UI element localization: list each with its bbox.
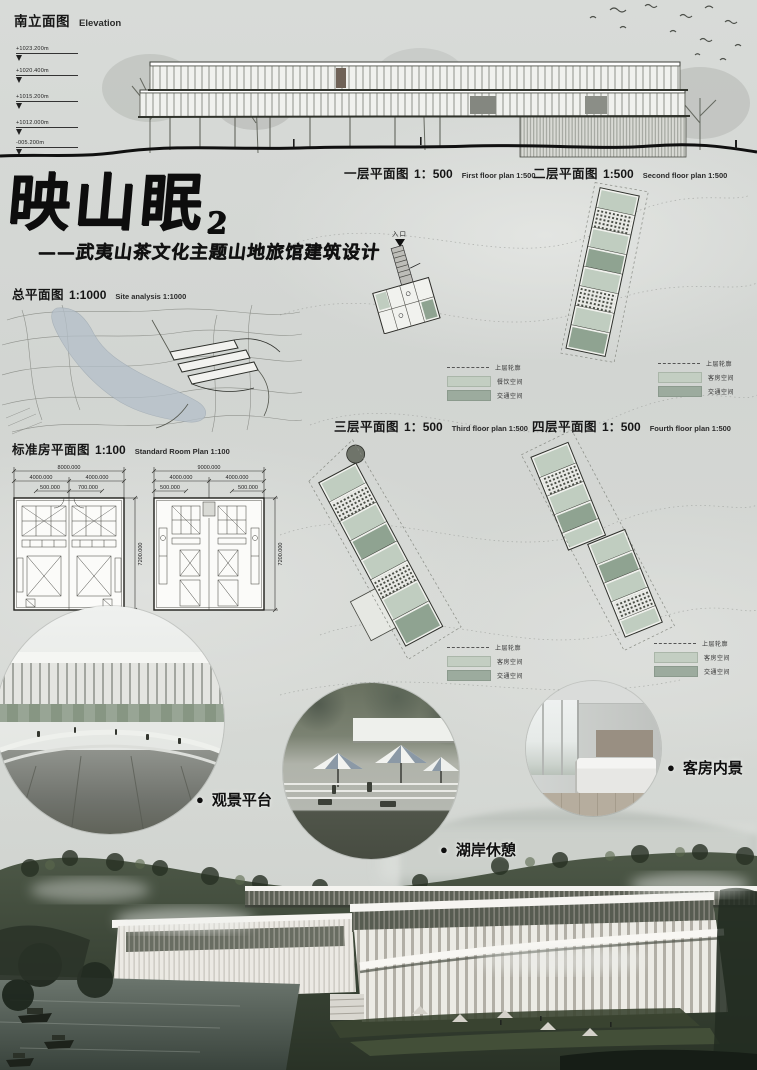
legend-light-label: 客房空间 [708, 373, 734, 382]
dashed-line-swatch [658, 363, 700, 364]
dim-a: 4000.000 [170, 475, 193, 481]
bullet-icon: ● [667, 760, 675, 775]
lakeside-caption: ● 湖岸休憩 [440, 839, 516, 860]
legend-dark-label: 交通空间 [708, 387, 734, 396]
legend-light-label: 客房空间 [704, 653, 730, 662]
platform-curves [0, 606, 224, 834]
person-figure [332, 785, 336, 794]
window-mullion [542, 700, 544, 776]
light-green-swatch [447, 376, 491, 387]
room-floor [526, 793, 661, 816]
dashed-line-swatch [447, 367, 489, 368]
elevation-title-zh: 南立面图 [14, 10, 70, 30]
light-green-swatch [654, 652, 698, 663]
first-floor-label-en: First floor plan 1:500 [462, 171, 536, 180]
standard-room-plan-left: 8000.000 4000.000 4000.000 500.000 700.0… [6, 462, 146, 622]
person-figure [367, 782, 372, 792]
dark-green-swatch [447, 670, 491, 681]
legend-third-floor: 上层轮廓 客房空间 交通空间 [447, 642, 523, 680]
lakeside-umbrellas [283, 683, 459, 859]
dim-b: 4000.000 [226, 475, 249, 481]
light-green-swatch [447, 656, 491, 667]
platform-caption-text: 观景平台 [212, 789, 272, 810]
first-floor-label: 一层平面图 1：500 First floor plan 1:500 [344, 163, 536, 182]
site-plan-drawing [2, 300, 302, 438]
dim-a: 4000.000 [30, 475, 53, 481]
room-caption: ● 客房内景 [667, 757, 743, 778]
platform-caption: ● 观景平台 [196, 789, 272, 810]
legend-dark-label: 交通空间 [704, 667, 730, 676]
dim-height: 7200.000 [138, 543, 144, 566]
first-floor-plan-drawing [350, 214, 460, 334]
render-circle-room [526, 681, 661, 816]
second-floor-scale: 1:500 [603, 167, 634, 181]
elevation-section-title: 南立面图 Elevation [14, 10, 121, 30]
site-building-footprint [170, 339, 280, 392]
dim-total: 9000.000 [198, 465, 221, 471]
main-title: 映山眠2 [5, 172, 235, 234]
legend-dashed-label: 上层轮廓 [706, 359, 732, 368]
table [380, 801, 396, 807]
dim-height: 7200.000 [278, 543, 284, 566]
room-window [526, 700, 579, 776]
legend-second-floor: 上层轮廓 客房空间 交通空间 [658, 358, 734, 396]
first-floor-label-zh: 一层平面图 [344, 163, 409, 182]
dark-green-swatch [447, 390, 491, 401]
standard-room-label-en: Standard Room Plan 1:100 [135, 447, 230, 456]
second-floor-label-en: Second floor plan 1:500 [643, 171, 728, 180]
legend-dark-label: 交通空间 [497, 671, 523, 680]
legend-light-label: 餐饮空间 [497, 377, 523, 386]
elevation-building [138, 62, 690, 157]
person-figure [115, 729, 118, 735]
standard-room-plan-right: 9000.000 4000.000 4000.000 500.000 500.0… [146, 462, 286, 622]
light-green-swatch [658, 372, 702, 383]
third-floor-plan-drawing [300, 432, 465, 687]
person-figure [74, 727, 77, 733]
main-title-number: 2 [205, 209, 232, 239]
legend-first-floor: 上层轮廓 餐饮空间 交通空间 [447, 362, 523, 400]
main-title-text: 映山眠 [5, 166, 209, 239]
birds-flock [550, 0, 757, 72]
room-bed [577, 758, 655, 793]
dim-b: 4000.000 [86, 475, 109, 481]
legend-dashed-label: 上层轮廓 [495, 363, 521, 372]
render-circle-lakeside [283, 683, 459, 859]
lake [0, 975, 300, 1070]
legend-dark-label: 交通空间 [497, 391, 523, 400]
render-circle-platform [0, 606, 224, 834]
person-figure [37, 731, 40, 737]
table [318, 799, 332, 805]
dashed-line-swatch [447, 647, 489, 648]
site-field-hatch [6, 408, 42, 434]
standard-room-label: 标准房平面图 1:100 Standard Room Plan 1:100 [12, 439, 230, 458]
presentation-board: 南立面图 Elevation +1023.200m +1020.400m +10… [0, 0, 757, 1070]
title-block: 映山眠2 [8, 172, 233, 234]
legend-dashed-label: 上层轮廓 [495, 643, 521, 652]
standard-room-label-zh: 标准房平面图 [12, 439, 90, 458]
legend-dashed-label: 上层轮廓 [702, 639, 728, 648]
dim-d: 700.000 [78, 485, 98, 491]
second-floor-plan-drawing [540, 180, 665, 370]
room-headboard [596, 730, 653, 757]
person-figure [146, 734, 149, 740]
dark-green-swatch [654, 666, 698, 677]
dim-c: 500.000 [160, 485, 180, 491]
dashed-line-swatch [654, 643, 696, 644]
fourth-floor-plan-drawing [505, 425, 680, 670]
subtitle: ——武夷山茶文化主题山地旅馆建筑设计 [36, 238, 381, 264]
first-floor-scale: 1：500 [414, 165, 453, 182]
legend-light-label: 客房空间 [497, 657, 523, 666]
dim-total: 8000.000 [58, 465, 81, 471]
dark-green-swatch [658, 386, 702, 397]
dim-c: 500.000 [40, 485, 60, 491]
dim-d: 500.000 [238, 485, 258, 491]
lakeside-caption-text: 湖岸休憩 [456, 839, 516, 860]
bullet-icon: ● [440, 842, 448, 857]
room-caption-text: 客房内景 [683, 757, 743, 778]
legend-fourth-floor: 上层轮廓 客房空间 交通空间 [654, 638, 730, 676]
window-mullion [561, 700, 563, 776]
standard-room-scale: 1:100 [95, 443, 126, 457]
bullet-icon: ● [196, 792, 204, 807]
person-figure [178, 738, 181, 744]
